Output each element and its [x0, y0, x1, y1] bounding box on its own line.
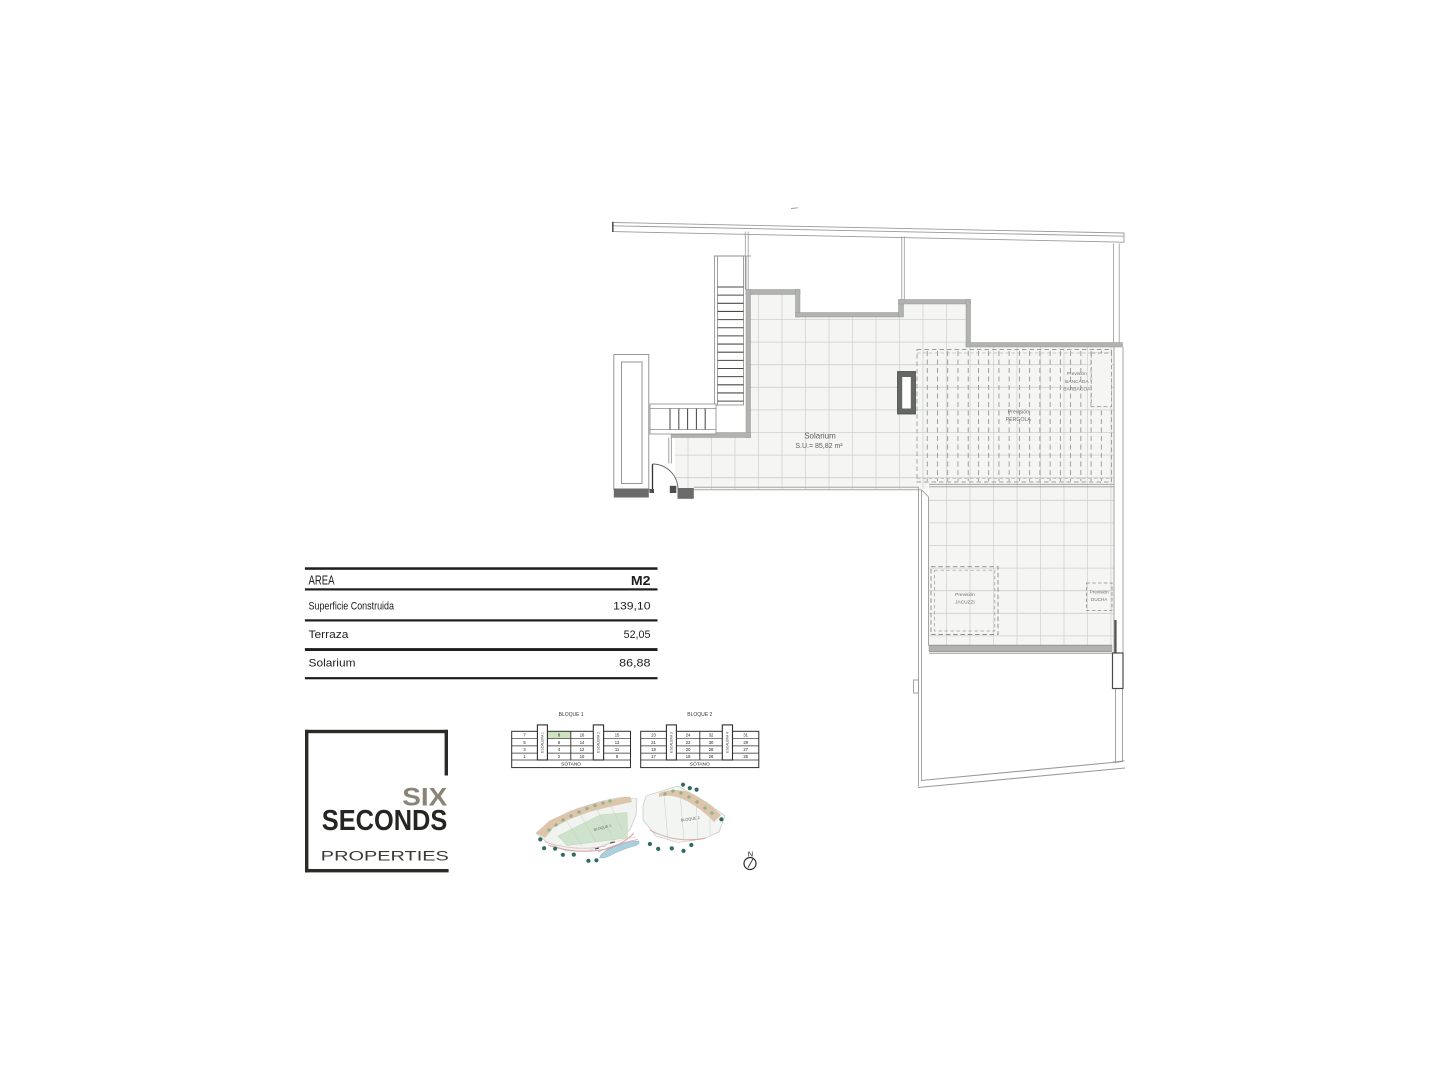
svg-text:86,88: 86,88 [619, 658, 650, 670]
svg-text:M2: M2 [631, 574, 651, 588]
svg-text:18: 18 [686, 754, 691, 759]
svg-text:24: 24 [686, 733, 691, 738]
svg-text:22: 22 [686, 740, 691, 745]
svg-text:Terraza: Terraza [309, 629, 350, 641]
svg-text:SÓTANO: SÓTANO [561, 761, 581, 768]
svg-text:14: 14 [580, 740, 585, 745]
svg-text:20: 20 [686, 747, 691, 752]
svg-text:139,10: 139,10 [613, 601, 650, 613]
svg-text:10: 10 [580, 754, 585, 759]
svg-text:17: 17 [651, 754, 656, 759]
svg-text:S.U.= 85,82 m²: S.U.= 85,82 m² [795, 443, 843, 450]
svg-text:26: 26 [709, 754, 714, 759]
svg-text:BANCADA: BANCADA [1065, 379, 1089, 385]
svg-text:DUCHA: DUCHA [1091, 597, 1108, 602]
svg-text:29: 29 [743, 740, 748, 745]
svg-text:ESCALERA 4: ESCALERA 4 [725, 732, 729, 753]
svg-text:27: 27 [743, 747, 748, 752]
svg-text:JACUZZI: JACUZZI [955, 600, 975, 606]
svg-text:PROPERTIES: PROPERTIES [321, 848, 449, 863]
svg-text:19: 19 [651, 747, 656, 752]
svg-text:ESCALERA 2: ESCALERA 2 [596, 732, 600, 753]
svg-text:52,05: 52,05 [624, 629, 651, 641]
svg-text:21: 21 [651, 740, 656, 745]
svg-text:30: 30 [709, 740, 714, 745]
svg-text:SECONDS: SECONDS [322, 805, 448, 837]
svg-text:Solarium: Solarium [309, 658, 356, 670]
svg-text:16: 16 [580, 733, 585, 738]
svg-text:13: 13 [615, 740, 620, 745]
svg-text:SÓTANO: SÓTANO [690, 761, 710, 768]
svg-text:ESCALERA 3: ESCALERA 3 [669, 732, 673, 753]
svg-text:AREA: AREA [309, 574, 335, 588]
svg-text:N: N [748, 850, 753, 859]
svg-text:25: 25 [743, 754, 748, 759]
svg-text:Superficie Construida: Superficie Construida [309, 601, 395, 613]
svg-text:BARBACOA: BARBACOA [1063, 387, 1091, 393]
svg-text:31: 31 [743, 733, 748, 738]
svg-text:Previsión: Previsión [1090, 590, 1109, 595]
svg-text:BLOQUE 2: BLOQUE 2 [687, 712, 712, 718]
svg-text:BLOQUE 1: BLOQUE 1 [559, 712, 584, 718]
svg-text:Previsión: Previsión [1008, 410, 1029, 416]
svg-text:23: 23 [651, 733, 656, 738]
svg-text:Solarium: Solarium [804, 431, 836, 440]
svg-text:15: 15 [615, 733, 620, 738]
svg-text:32: 32 [709, 733, 714, 738]
svg-text:28: 28 [709, 747, 714, 752]
svg-text:Previsión: Previsión [955, 592, 975, 598]
svg-text:Previsión: Previsión [1067, 371, 1087, 377]
svg-text:ESCALERA 1: ESCALERA 1 [540, 732, 544, 753]
svg-text:PÉRGOLA: PÉRGOLA [1006, 416, 1032, 423]
svg-text:11: 11 [615, 747, 620, 752]
svg-text:12: 12 [580, 747, 585, 752]
